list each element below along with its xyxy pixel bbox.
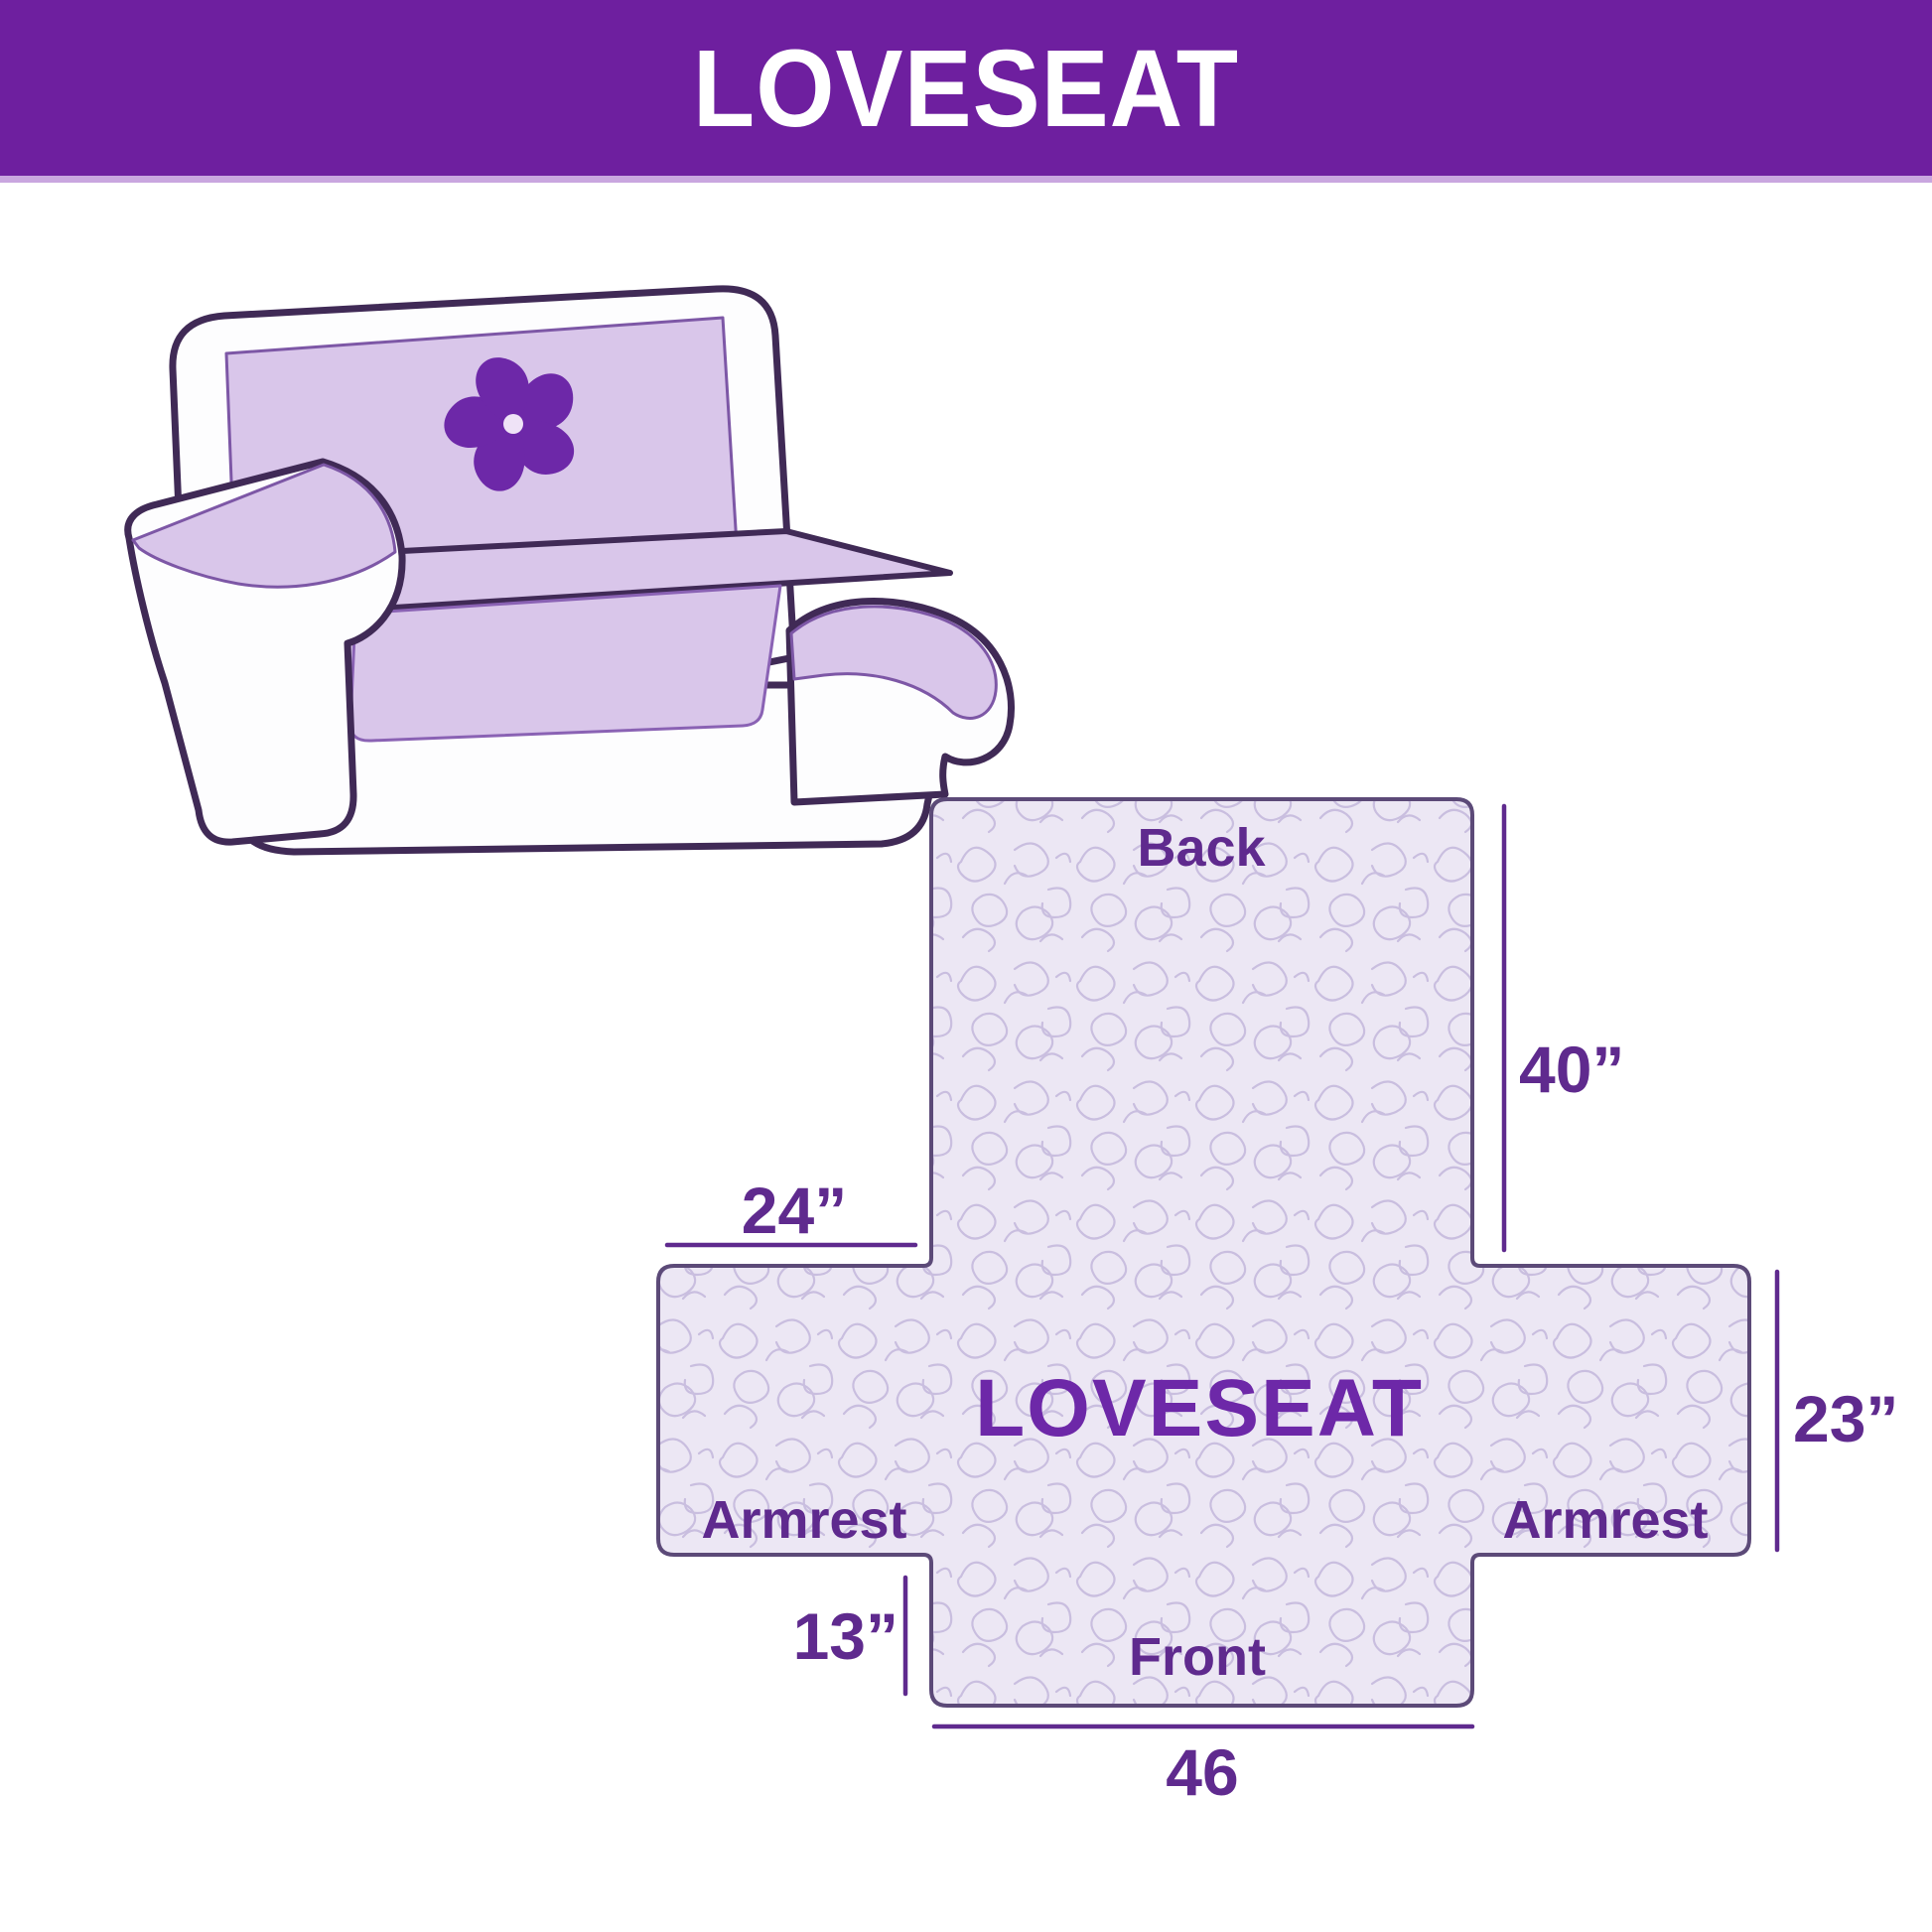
infographic-canvas: LOVESEAT <box>0 0 1932 1932</box>
dim-back-height: 40” <box>1519 1033 1624 1106</box>
cover-cross-shape <box>658 799 1749 1706</box>
dim-armrest-depth: 24” <box>742 1173 847 1247</box>
back-panel-label: Back <box>1137 818 1266 878</box>
dim-front-width: 46 <box>1166 1735 1238 1809</box>
armrest-right-label: Armrest <box>1502 1490 1708 1550</box>
dim-front-drop: 13” <box>793 1599 898 1673</box>
front-panel-label: Front <box>1129 1627 1266 1687</box>
armrest-left-label: Armrest <box>701 1490 906 1550</box>
center-loveseat-label: LOVESEAT <box>975 1363 1424 1453</box>
dim-side-height: 23” <box>1793 1382 1898 1455</box>
dimension-diagram: Back LOVESEAT Armrest Armrest Front 40” … <box>0 0 1932 1932</box>
